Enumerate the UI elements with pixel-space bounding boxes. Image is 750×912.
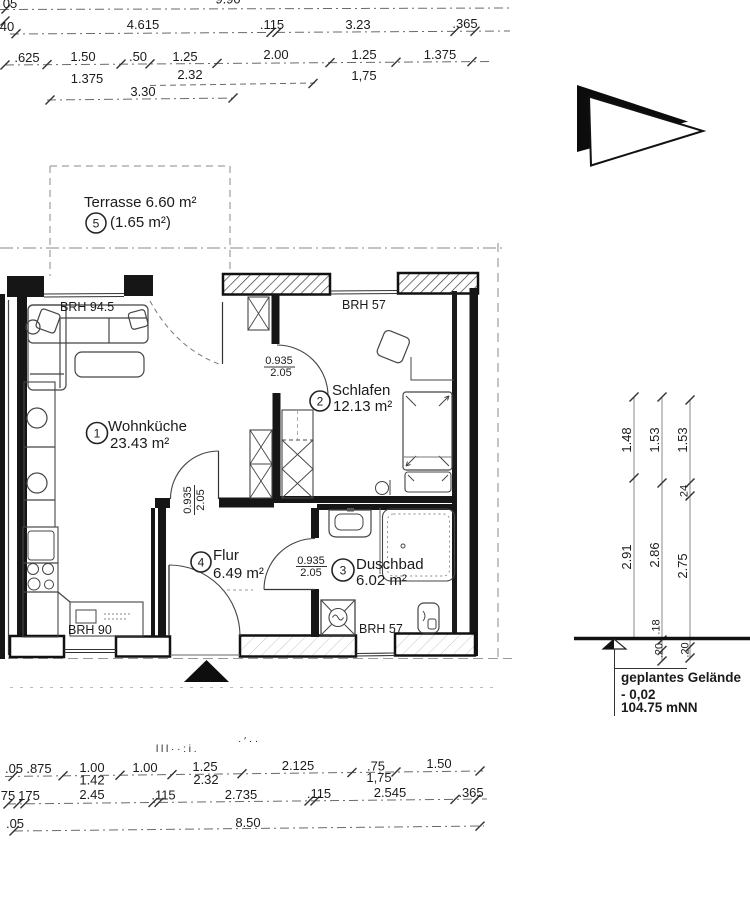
svg-text:· ′ · ·: · ′ · ·: [238, 736, 258, 747]
svg-text:2.05: 2.05: [195, 489, 207, 510]
svg-text:1.00: 1.00: [132, 760, 157, 775]
svg-text:1,75: 1,75: [351, 68, 376, 83]
svg-text:.05: .05: [5, 761, 23, 776]
svg-text:3: 3: [340, 564, 347, 578]
svg-text:Schlafen: Schlafen: [332, 382, 390, 399]
svg-text:1.25: 1.25: [172, 49, 197, 64]
svg-text:1.375: 1.375: [71, 71, 104, 86]
svg-text:2: 2: [317, 395, 324, 409]
svg-text:12.13 m²: 12.13 m²: [333, 398, 392, 415]
svg-text:2.05: 2.05: [300, 567, 321, 579]
svg-text:1.53: 1.53: [675, 427, 690, 452]
svg-text:2.05: 2.05: [270, 367, 291, 379]
svg-text:BRH 94.5: BRH 94.5: [60, 300, 114, 314]
svg-text:3.23: 3.23: [345, 17, 370, 32]
svg-text:Flur: Flur: [213, 547, 239, 564]
svg-text:2.86: 2.86: [647, 542, 662, 567]
svg-text:1.50: 1.50: [426, 756, 451, 771]
svg-text:.20: .20: [654, 643, 666, 658]
svg-text:0.935: 0.935: [182, 486, 194, 514]
svg-text:1.48: 1.48: [619, 427, 634, 452]
svg-text:1.42: 1.42: [79, 773, 104, 788]
svg-text:2.545: 2.545: [374, 785, 407, 800]
svg-text:.05: .05: [6, 816, 24, 831]
svg-text:.365: .365: [452, 16, 477, 31]
svg-text:.24: .24: [679, 485, 691, 500]
svg-text:Terrasse 6.60 m²: Terrasse 6.60 m²: [84, 194, 197, 211]
svg-text:1.25: 1.25: [351, 47, 376, 62]
svg-text:75: 75: [1, 788, 15, 803]
svg-text:.365: .365: [458, 785, 483, 800]
svg-text:5: 5: [93, 217, 100, 231]
svg-text:6.49 m²: 6.49 m²: [213, 565, 264, 582]
svg-text:175: 175: [18, 788, 40, 803]
svg-text:2.32: 2.32: [177, 67, 202, 82]
svg-text:0.935: 0.935: [297, 555, 325, 567]
svg-text:.115: .115: [260, 17, 284, 32]
svg-text:2.00: 2.00: [263, 47, 288, 62]
svg-text:2.45: 2.45: [79, 787, 104, 802]
svg-text:2.91: 2.91: [619, 544, 634, 569]
svg-text:.875: .875: [26, 761, 51, 776]
svg-text:(1.65 m²): (1.65 m²): [110, 214, 171, 231]
svg-text:BRH 57: BRH 57: [359, 622, 403, 636]
svg-text:9.90: 9.90: [215, 0, 240, 7]
svg-text:2.735: 2.735: [225, 787, 258, 802]
svg-text:Wohnküche: Wohnküche: [108, 418, 187, 435]
svg-text:1.375: 1.375: [424, 47, 457, 62]
svg-text:0.935: 0.935: [265, 355, 293, 367]
svg-text:1.50: 1.50: [70, 49, 95, 64]
svg-text:23.43 m²: 23.43 m²: [110, 435, 169, 452]
svg-text:.115: .115: [151, 788, 175, 803]
svg-text:40: 40: [0, 19, 14, 34]
svg-text:.115: .115: [307, 786, 331, 801]
svg-text:3.30: 3.30: [130, 84, 155, 99]
svg-text:05: 05: [3, 0, 17, 11]
svg-text:1,75: 1,75: [366, 770, 391, 785]
svg-text:geplantes Gelände: geplantes Gelände: [621, 670, 742, 685]
svg-text:l l l · · : i .: l l l · · : i .: [156, 744, 197, 755]
svg-text:4.615: 4.615: [127, 17, 160, 32]
svg-text:Duschbad: Duschbad: [356, 556, 424, 573]
svg-text:6.02 m²: 6.02 m²: [356, 572, 407, 589]
svg-text:BRH 90: BRH 90: [68, 623, 112, 637]
svg-text:2.125: 2.125: [282, 758, 315, 773]
svg-text:2.75: 2.75: [675, 553, 690, 578]
svg-text:2.32: 2.32: [193, 772, 218, 787]
svg-text:.20: .20: [680, 642, 692, 657]
svg-text:8.50: 8.50: [235, 815, 260, 830]
svg-text:BRH 57: BRH 57: [342, 298, 386, 312]
svg-text:1.53: 1.53: [647, 427, 662, 452]
svg-text:104.75 mNN: 104.75 mNN: [621, 700, 698, 715]
svg-text:.625: .625: [14, 50, 39, 65]
svg-text:.18: .18: [651, 619, 663, 634]
svg-text:4: 4: [198, 556, 205, 570]
svg-text:1: 1: [94, 427, 101, 441]
svg-text:.50: .50: [129, 49, 147, 64]
